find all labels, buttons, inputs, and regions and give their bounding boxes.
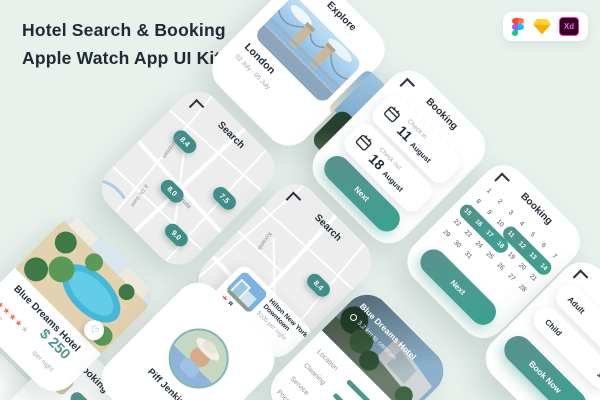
figma-icon (512, 18, 525, 36)
design-tool-badges: Xd (503, 12, 588, 41)
page-background: Hotel Search & Booking Apple Watch App U… (0, 0, 600, 400)
adobe-xd-icon: Xd (559, 17, 579, 36)
check-in-month: August (408, 140, 433, 165)
page-title-line2: Apple Watch App UI Kit (22, 44, 226, 72)
child-value: 1 (595, 369, 600, 379)
sketch-icon (533, 19, 551, 35)
check-out-month: August (380, 169, 405, 194)
child-label: Child (543, 317, 564, 338)
calendar-icon (383, 104, 403, 124)
page-title-line1: Hotel Search & Booking (22, 16, 226, 44)
adult-label: Adult (566, 295, 587, 316)
calendar-icon (354, 132, 374, 152)
page-title: Hotel Search & Booking Apple Watch App U… (22, 16, 226, 72)
corner-marker-icon (573, 269, 589, 285)
